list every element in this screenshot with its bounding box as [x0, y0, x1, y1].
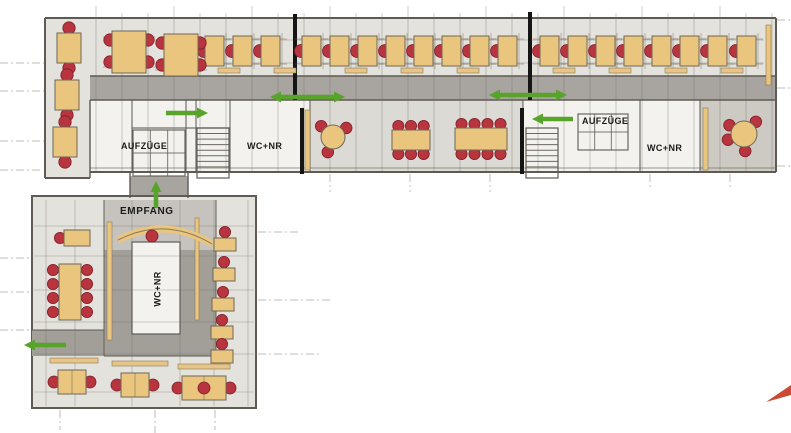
- chair-icon: [81, 306, 92, 317]
- desk-icon: [212, 298, 234, 311]
- chair-icon: [47, 264, 58, 275]
- chair-icon: [218, 256, 229, 267]
- wood-strip: [305, 110, 310, 170]
- sideboard-icon: [218, 68, 240, 73]
- desk-icon: [386, 36, 405, 66]
- desk-icon: [214, 238, 236, 251]
- label-wc-northwest: WC+NR: [247, 141, 282, 151]
- desk-icon: [211, 326, 233, 339]
- chair-icon: [81, 278, 92, 289]
- sideboard-icon: [112, 361, 168, 366]
- chair-icon: [81, 264, 92, 275]
- sideboard-icon: [553, 68, 575, 73]
- desk-icon: [211, 350, 233, 363]
- round-table-icon: [321, 125, 345, 149]
- desk-icon: [53, 127, 77, 157]
- chair-icon: [217, 286, 228, 297]
- desk-icon: [414, 36, 433, 66]
- floor-plan-drawing: [0, 0, 791, 433]
- label-wc-south: WC+NR: [153, 271, 163, 306]
- desk-icon: [652, 36, 671, 66]
- desk-icon: [737, 36, 756, 66]
- round-table-icon: [731, 121, 757, 147]
- label-elevators-east: AUFZÜGE: [582, 116, 628, 126]
- desk-icon: [442, 36, 461, 66]
- chair-icon: [47, 292, 58, 303]
- chair-icon: [63, 22, 75, 34]
- chair-icon: [216, 338, 227, 349]
- meeting-table-icon: [455, 128, 507, 150]
- label-elevators-west: AUFZÜGE: [121, 141, 167, 151]
- chair-icon: [47, 306, 58, 317]
- desk-icon: [57, 33, 81, 63]
- conference-table-icon: [59, 264, 81, 320]
- fire-wall: [520, 108, 524, 174]
- chair-icon: [61, 69, 73, 81]
- desk-icon: [213, 268, 235, 281]
- label-wc-northeast: WC+NR: [647, 143, 682, 153]
- chair-icon: [198, 382, 210, 394]
- desk-icon: [233, 36, 252, 66]
- fire-wall: [300, 108, 304, 174]
- meeting-table-icon: [392, 130, 430, 150]
- chair-icon: [216, 314, 227, 325]
- wood-strip: [703, 108, 708, 170]
- desk-icon: [540, 36, 559, 66]
- wood-strip: [766, 25, 771, 85]
- desk-icon: [596, 36, 615, 66]
- chair-icon: [81, 292, 92, 303]
- wood-strip: [107, 222, 112, 340]
- desk-icon: [498, 36, 517, 66]
- desk-icon: [261, 36, 280, 66]
- sideboard-icon: [721, 68, 743, 73]
- chair-icon: [59, 116, 71, 128]
- chair-icon: [47, 278, 58, 289]
- fire-wall: [293, 14, 297, 100]
- desk-icon: [55, 80, 79, 110]
- sideboard-icon: [178, 364, 230, 369]
- desk-icon: [112, 31, 146, 73]
- desk-icon: [205, 36, 224, 66]
- chair-icon: [59, 156, 71, 168]
- arrow-head: [24, 340, 35, 351]
- desk-icon: [680, 36, 699, 66]
- desk-icon: [568, 36, 587, 66]
- label-reception: EMPFANG: [120, 206, 174, 217]
- sideboard-icon: [457, 68, 479, 73]
- sideboard-icon: [274, 68, 296, 73]
- desk-icon: [708, 36, 727, 66]
- sideboard-icon: [665, 68, 687, 73]
- desk-icon: [358, 36, 377, 66]
- desk-icon: [164, 34, 198, 76]
- desk-icon: [624, 36, 643, 66]
- floor-plan-canvas: AUFZÜGE WC+NR AUFZÜGE WC+NR EMPFANG WC+N…: [0, 0, 791, 433]
- sideboard-icon: [401, 68, 423, 73]
- sideboard-icon: [609, 68, 631, 73]
- desk-icon: [302, 36, 321, 66]
- north-corridor: [90, 76, 776, 100]
- chair-icon: [219, 226, 230, 237]
- fire-wall: [528, 12, 532, 100]
- desk-icon: [470, 36, 489, 66]
- red-mark: [766, 385, 791, 402]
- sideboard-icon: [345, 68, 367, 73]
- chair-icon: [146, 230, 158, 242]
- desk-icon: [64, 230, 90, 246]
- sideboard-icon: [50, 358, 98, 363]
- desk-icon: [330, 36, 349, 66]
